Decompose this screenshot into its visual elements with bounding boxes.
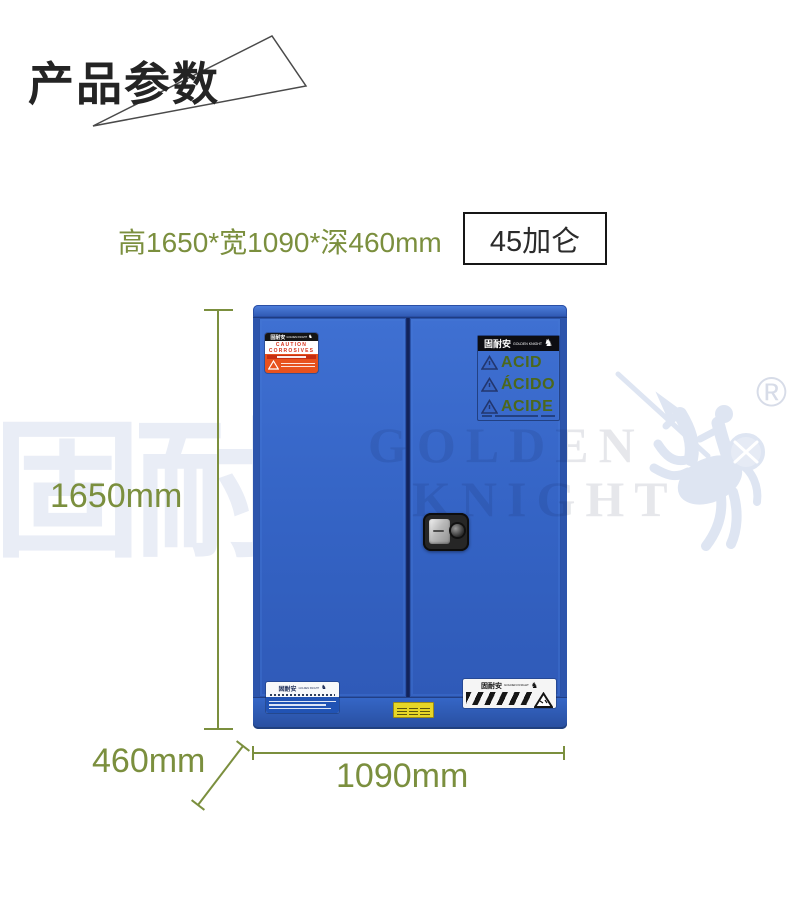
- capacity-label: 45加仑: [490, 218, 580, 260]
- acid-text-en: ACID: [501, 354, 542, 372]
- acid-text-fr: ACIDE: [501, 398, 553, 416]
- brand-en: GOLDEN KNIGHT: [286, 336, 307, 339]
- yellow-base-label: [393, 702, 434, 718]
- label-brand-bar: 固耐安 GOLDEN KNIGHT ♞: [466, 681, 553, 691]
- brand-cn: 固耐安: [484, 337, 511, 350]
- knight-icon: ♞: [544, 339, 553, 349]
- registered-trademark-icon: ®: [756, 368, 787, 416]
- label-brand-bar: 固耐安 GOLDEN KNIGHT ♞: [478, 336, 559, 351]
- brand-cn: 固耐安: [270, 334, 285, 341]
- brand-watermark-knight: KNIGHT: [412, 470, 678, 528]
- height-dimension-label: 1650mm: [50, 477, 182, 516]
- page-title: 产品参数: [28, 48, 220, 114]
- caution-fineprint-bars: [281, 363, 315, 367]
- label-brand-bar: 固耐安 GOLDEN KNIGHT ♞: [278, 684, 326, 693]
- door-seam: [406, 318, 410, 697]
- knight-icon: ♞: [531, 682, 538, 690]
- caution-text-band: CAUTION CORROSIVES: [265, 341, 318, 354]
- caution-bottom: [265, 359, 318, 371]
- knight-icon: ♞: [308, 335, 312, 340]
- spec-label-bottom: [266, 697, 339, 713]
- caution-line2: CORROSIVES: [269, 348, 314, 354]
- acid-row: ACIDE: [478, 396, 559, 417]
- product-dimensions-text: 高1650*宽1090*深460mm: [118, 221, 442, 261]
- brand-watermark-golden: GOLDEN: [368, 416, 645, 474]
- hazard-stripes: [466, 692, 532, 705]
- warning-triangle-icon: [481, 399, 498, 414]
- cabinet-top-cap: [253, 305, 567, 318]
- label-brand-bar: 固耐安 GOLDEN KNIGHT ♞: [265, 333, 318, 341]
- hazard-stripes-label: 固耐安 GOLDEN KNIGHT ♞: [463, 679, 556, 708]
- brand-cn: 固耐安: [481, 681, 502, 691]
- brand-en: GOLDEN KNIGHT: [504, 684, 529, 688]
- product-parameters-page: 产品参数 高1650*宽1090*深460mm 45加仑 固耐安 GOLDEN …: [0, 0, 790, 916]
- caution-corrosives-label: 固耐安 GOLDEN KNIGHT ♞ CAUTION CORROSIVES: [265, 333, 318, 373]
- capacity-badge: 45加仑: [463, 212, 607, 265]
- warning-triangle-icon: [481, 377, 498, 392]
- depth-dimension-label: 460mm: [92, 742, 205, 781]
- corrosive-triangle-icon: [534, 692, 553, 708]
- brand-en: GOLDEN KNIGHT: [513, 342, 542, 346]
- brand-en: GOLDEN KNIGHT: [298, 687, 319, 690]
- hazard-bottom: [466, 692, 553, 705]
- warning-triangle-icon: [268, 360, 279, 370]
- acid-warning-label: 固耐安 GOLDEN KNIGHT ♞ ACID ÁCI: [477, 335, 560, 421]
- acid-row: ÁCIDO: [478, 374, 559, 395]
- cabinet-left-door: [259, 318, 406, 697]
- spec-info-label: 固耐安 GOLDEN KNIGHT ♞: [266, 682, 339, 713]
- acid-text-es: ÁCIDO: [501, 376, 555, 394]
- acid-row: ACID: [478, 352, 559, 373]
- spec-label-top: 固耐安 GOLDEN KNIGHT ♞: [266, 682, 339, 697]
- brand-cn: 固耐安: [278, 684, 296, 693]
- width-dimension-label: 1090mm: [336, 757, 468, 796]
- spec-fineprint-bars: [270, 694, 334, 696]
- knight-icon: ♞: [321, 685, 326, 691]
- warning-triangle-icon: [481, 355, 498, 370]
